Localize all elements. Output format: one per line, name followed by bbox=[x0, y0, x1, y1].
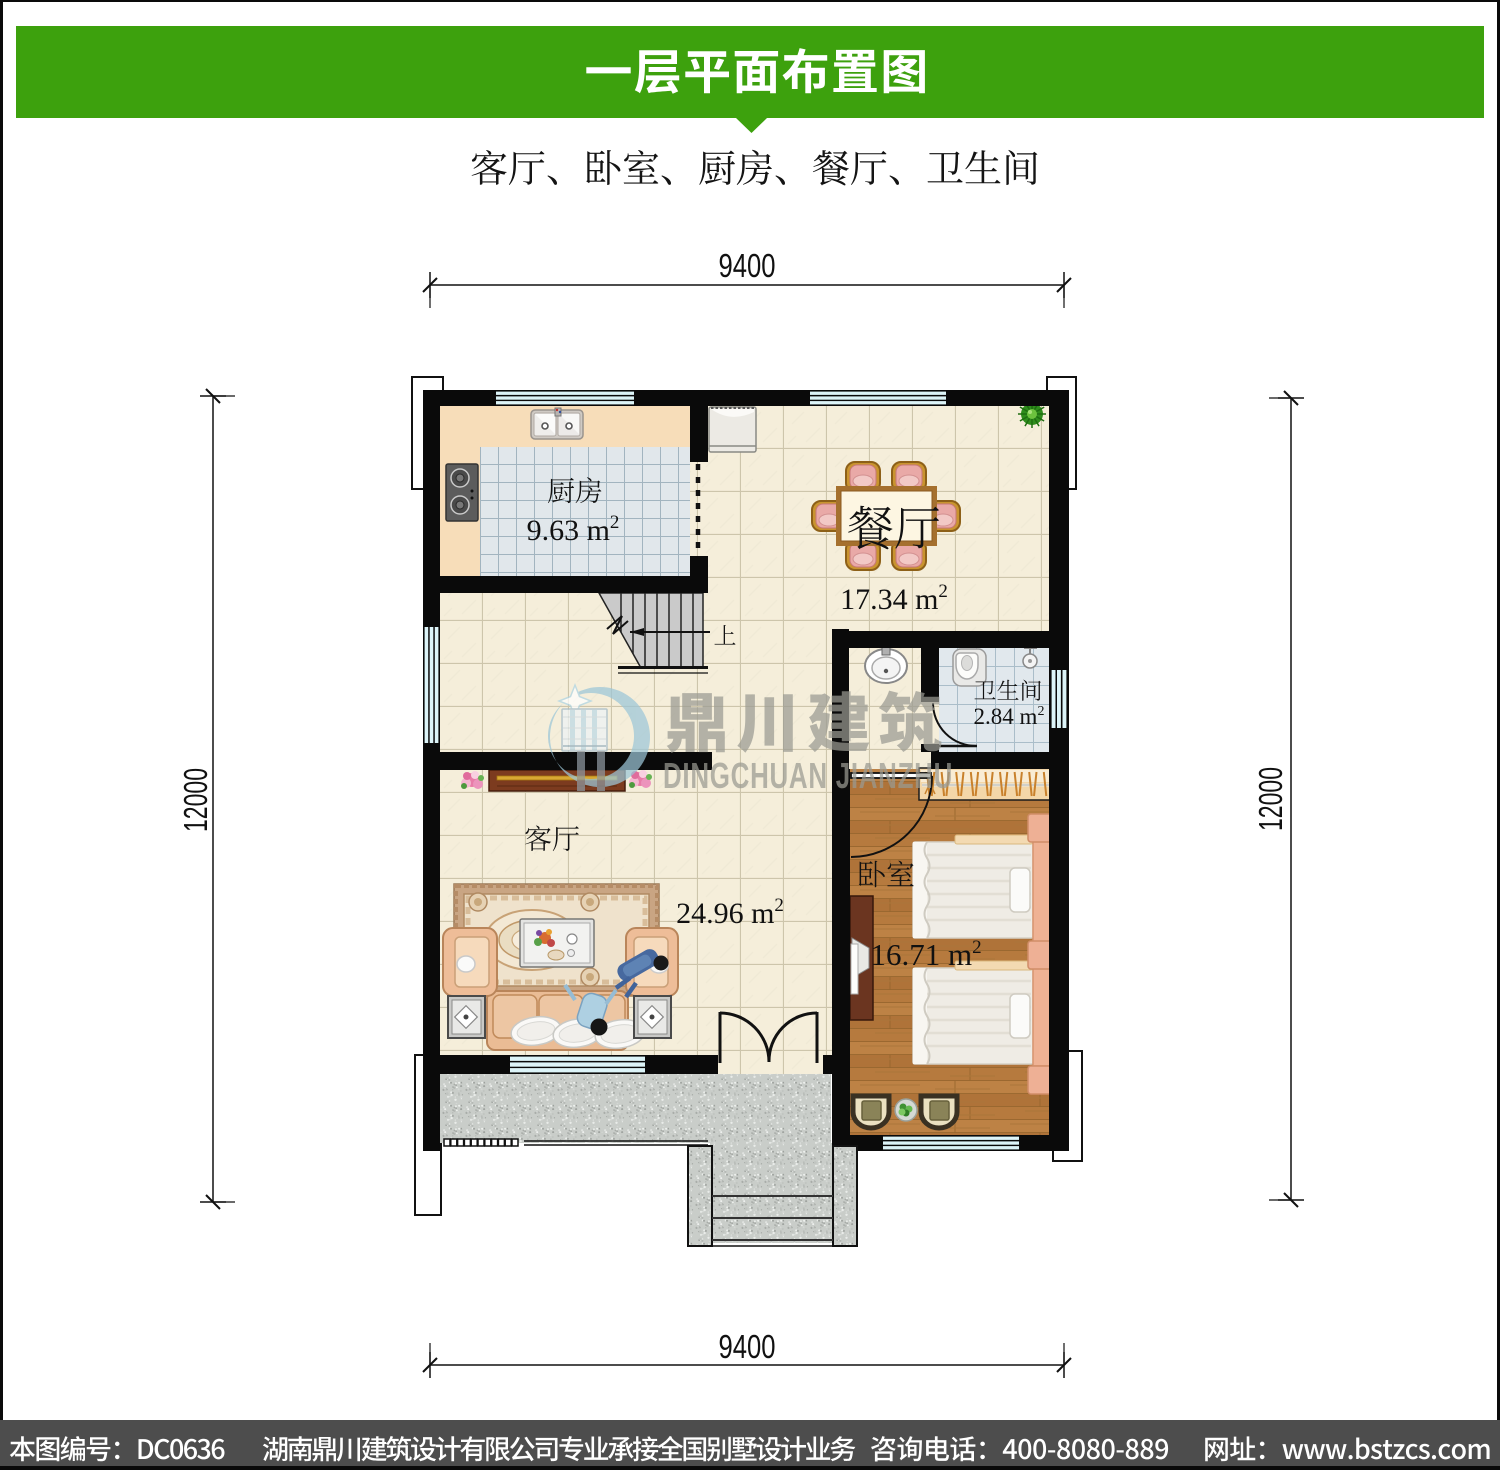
svg-text:12000: 12000 bbox=[177, 768, 214, 832]
svg-text:12000: 12000 bbox=[1252, 767, 1289, 831]
svg-text:2.84 m2: 2.84 m2 bbox=[974, 704, 1045, 729]
svg-text:9.63 m2: 9.63 m2 bbox=[527, 512, 620, 547]
svg-text:9400: 9400 bbox=[719, 247, 776, 284]
svg-text:24.96 m2: 24.96 m2 bbox=[676, 895, 784, 930]
svg-text:DINGCHUAN JIANZHU: DINGCHUAN JIANZHU bbox=[663, 755, 953, 796]
svg-text:17.34 m2: 17.34 m2 bbox=[840, 581, 948, 616]
svg-text:9400: 9400 bbox=[719, 1328, 776, 1365]
svg-text:16.71 m2: 16.71 m2 bbox=[870, 937, 981, 972]
